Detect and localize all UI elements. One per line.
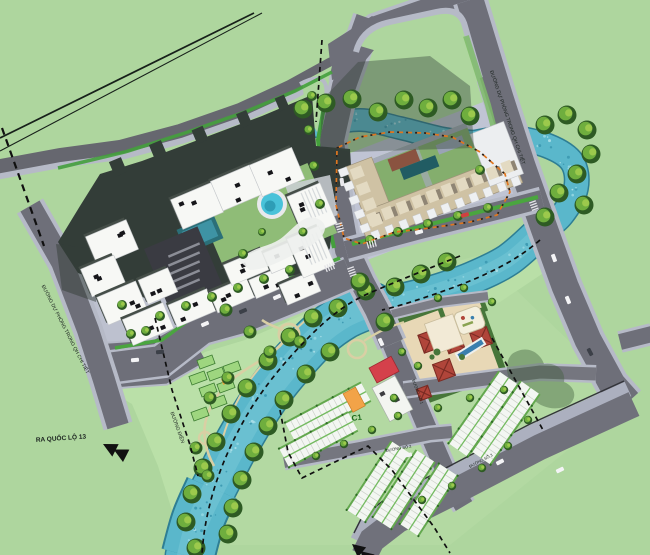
svg-text:C1: C1	[351, 413, 363, 423]
